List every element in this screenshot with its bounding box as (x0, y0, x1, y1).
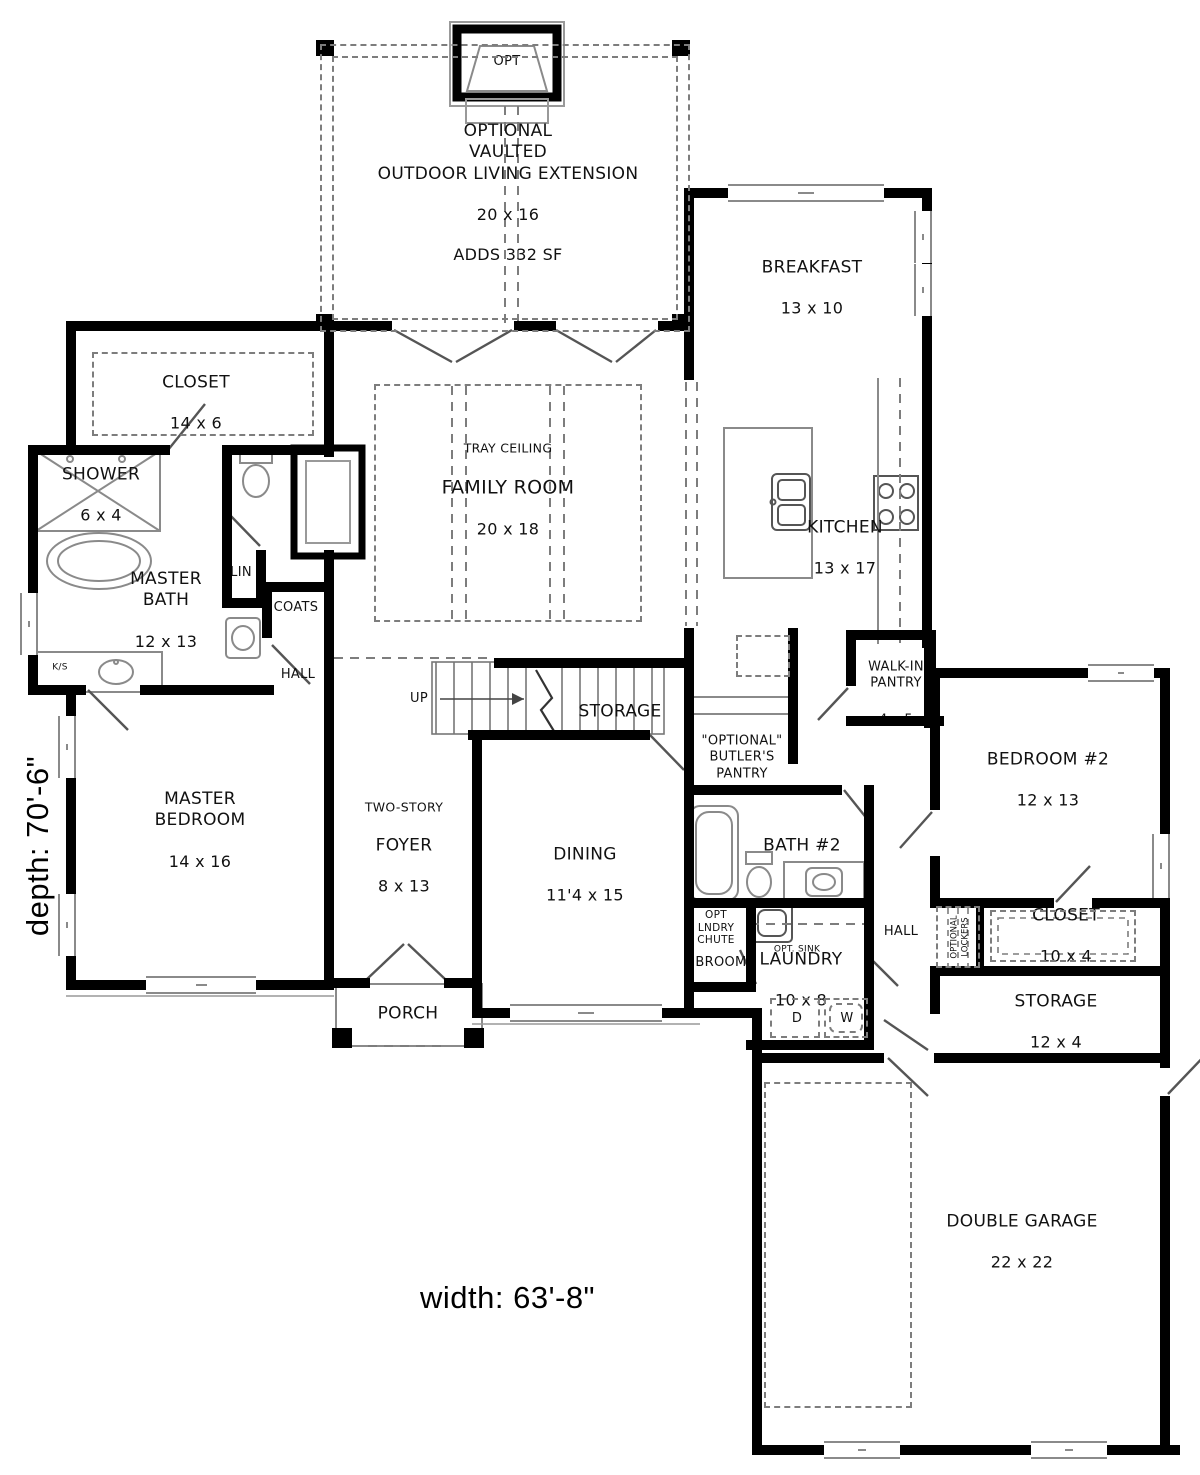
window (914, 264, 932, 316)
floor-plan: OPT OPTIONAL VAULTED OUTDOOR LIVING EXTE… (0, 0, 1200, 1475)
room-label-dining: DINING 11'4 x 15 (546, 824, 624, 925)
wall-segment (1092, 898, 1170, 908)
kitchen-dims: 13 x 17 (807, 559, 883, 579)
window (510, 1004, 662, 1022)
hall-left-name: HALL (281, 667, 315, 683)
wall-segment (262, 582, 272, 638)
wall-segment (140, 685, 274, 695)
wall-segment (752, 1053, 884, 1063)
wall-segment (1160, 1096, 1170, 1455)
bedroom2-name: BEDROOM #2 (987, 749, 1109, 770)
room-label-foyer: TWO-STORY FOYER 8 x 13 (365, 780, 443, 917)
wall-segment (222, 598, 266, 608)
wall-segment (28, 445, 170, 455)
dashed-outline (92, 352, 314, 436)
wall-segment (846, 630, 856, 686)
hall-right-name: HALL (884, 924, 918, 940)
dashed-outline (936, 906, 980, 968)
dashed-outline (764, 1082, 912, 1408)
bath2-name: BATH #2 (763, 835, 841, 856)
storage2-dims: 12 x 4 (1014, 1033, 1097, 1053)
wall-segment (66, 321, 334, 331)
master-bedroom-name: MASTER BEDROOM (155, 789, 246, 832)
breakfast-name: BREAKFAST (762, 257, 863, 278)
room-label-master-bath: MASTER BATH 12 x 13 (130, 549, 202, 672)
room-label-walkin-pantry: WALK-IN PANTRY 4 x 5 (868, 640, 924, 749)
room-label-kitchen: KITCHEN 13 x 17 (807, 497, 883, 598)
wall-segment (684, 898, 874, 908)
room-label-breakfast: BREAKFAST 13 x 10 (762, 237, 863, 338)
wall-segment (934, 1053, 1170, 1063)
dashed-outline (332, 56, 678, 320)
wall-segment (752, 1040, 762, 1455)
linen-name: LIN (230, 565, 252, 581)
butlers-pantry-name: "OPTIONAL" BUTLER'S PANTRY (702, 734, 783, 783)
porch-name: PORCH (378, 1003, 439, 1024)
wall-segment (752, 1445, 1180, 1455)
master-bath-dims: 12 x 13 (130, 631, 202, 651)
room-label-porch: PORCH (378, 983, 439, 1044)
garage-dims: 22 x 22 (946, 1253, 1097, 1273)
dining-name: DINING (546, 844, 624, 865)
foyer-upper: TWO-STORY (365, 800, 443, 816)
wall-segment (494, 658, 690, 668)
stair-storage-name: STORAGE (578, 701, 661, 722)
window (914, 211, 932, 263)
width-dimension-label: width: 63'-8" (420, 1280, 595, 1316)
room-label-master-bedroom: MASTER BEDROOM 14 x 16 (155, 769, 246, 892)
family-room-fireplace (294, 448, 362, 556)
window (20, 593, 38, 655)
room-label-linen: LIN (230, 545, 252, 601)
wall-segment (684, 982, 756, 992)
storage2-name: STORAGE (1014, 991, 1097, 1012)
wall-segment (1160, 898, 1170, 1068)
master-bedroom-dims: 14 x 16 (155, 851, 246, 871)
wall-segment (746, 898, 756, 992)
room-label-hall-right: HALL (884, 904, 918, 960)
coats-name: COATS (274, 600, 319, 616)
master-toilet (240, 451, 272, 497)
depth-dimension-label: depth: 70'-6" (20, 696, 56, 996)
kitchen-name: KITCHEN (807, 517, 883, 538)
dashed-outline (824, 998, 868, 1038)
master-bath-name: MASTER BATH (130, 569, 202, 612)
wall-segment (930, 966, 940, 1014)
window (1088, 664, 1154, 682)
wall-segment (846, 630, 934, 640)
breakfast-dims: 13 x 10 (762, 299, 863, 319)
garage-name: DOUBLE GARAGE (946, 1211, 1097, 1232)
ks-name: K/S (52, 662, 68, 673)
broom-name: BROOM (695, 955, 746, 971)
wall-segment (324, 685, 334, 990)
dining-dims: 11'4 x 15 (546, 886, 624, 906)
room-label-bedroom2: BEDROOM #2 12 x 13 (987, 729, 1109, 830)
dashed-outline (374, 384, 642, 622)
dashed-outline (990, 910, 1136, 962)
wall-segment (684, 785, 842, 795)
window (58, 716, 76, 778)
wall-segment (324, 321, 334, 457)
bedroom2-dims: 12 x 13 (987, 791, 1109, 811)
dashed-outline (736, 635, 790, 677)
room-label-hall-left: HALL (281, 647, 315, 703)
stairs-up-label: UP (410, 671, 428, 727)
wall-segment (864, 785, 874, 908)
room-label-garage: DOUBLE GARAGE 22 x 22 (946, 1191, 1097, 1292)
wall-segment (746, 1040, 874, 1050)
kitchen-island (724, 428, 812, 578)
wall-segment (66, 321, 76, 455)
wall-segment (444, 978, 482, 988)
wall-segment (28, 445, 38, 695)
laundry-name: LAUNDRY (760, 949, 843, 970)
room-label-shower: SHOWER 6 x 4 (62, 444, 140, 545)
window (146, 976, 256, 994)
walkin-pantry-name: WALK-IN PANTRY (868, 660, 924, 693)
foyer-dims: 8 x 13 (365, 876, 443, 896)
wall-segment (324, 550, 334, 695)
wall-segment (28, 685, 86, 695)
window (1031, 1441, 1107, 1459)
shower-dims: 6 x 4 (62, 506, 140, 526)
wall-segment (472, 730, 482, 1018)
window (1152, 834, 1170, 898)
wall-segment (222, 445, 232, 557)
window (728, 184, 884, 202)
up-text: UP (410, 691, 428, 707)
window (824, 1441, 900, 1459)
wall-segment (468, 730, 650, 740)
room-label-bath2: BATH #2 (763, 815, 841, 876)
wall-segment (262, 582, 334, 592)
window (58, 894, 76, 956)
wall-segment (930, 668, 940, 810)
foyer-name: FOYER (365, 835, 443, 856)
wall-segment (222, 445, 334, 455)
shower-name: SHOWER (62, 464, 140, 485)
dashed-outline (770, 998, 820, 1038)
wall-segment (334, 978, 370, 988)
